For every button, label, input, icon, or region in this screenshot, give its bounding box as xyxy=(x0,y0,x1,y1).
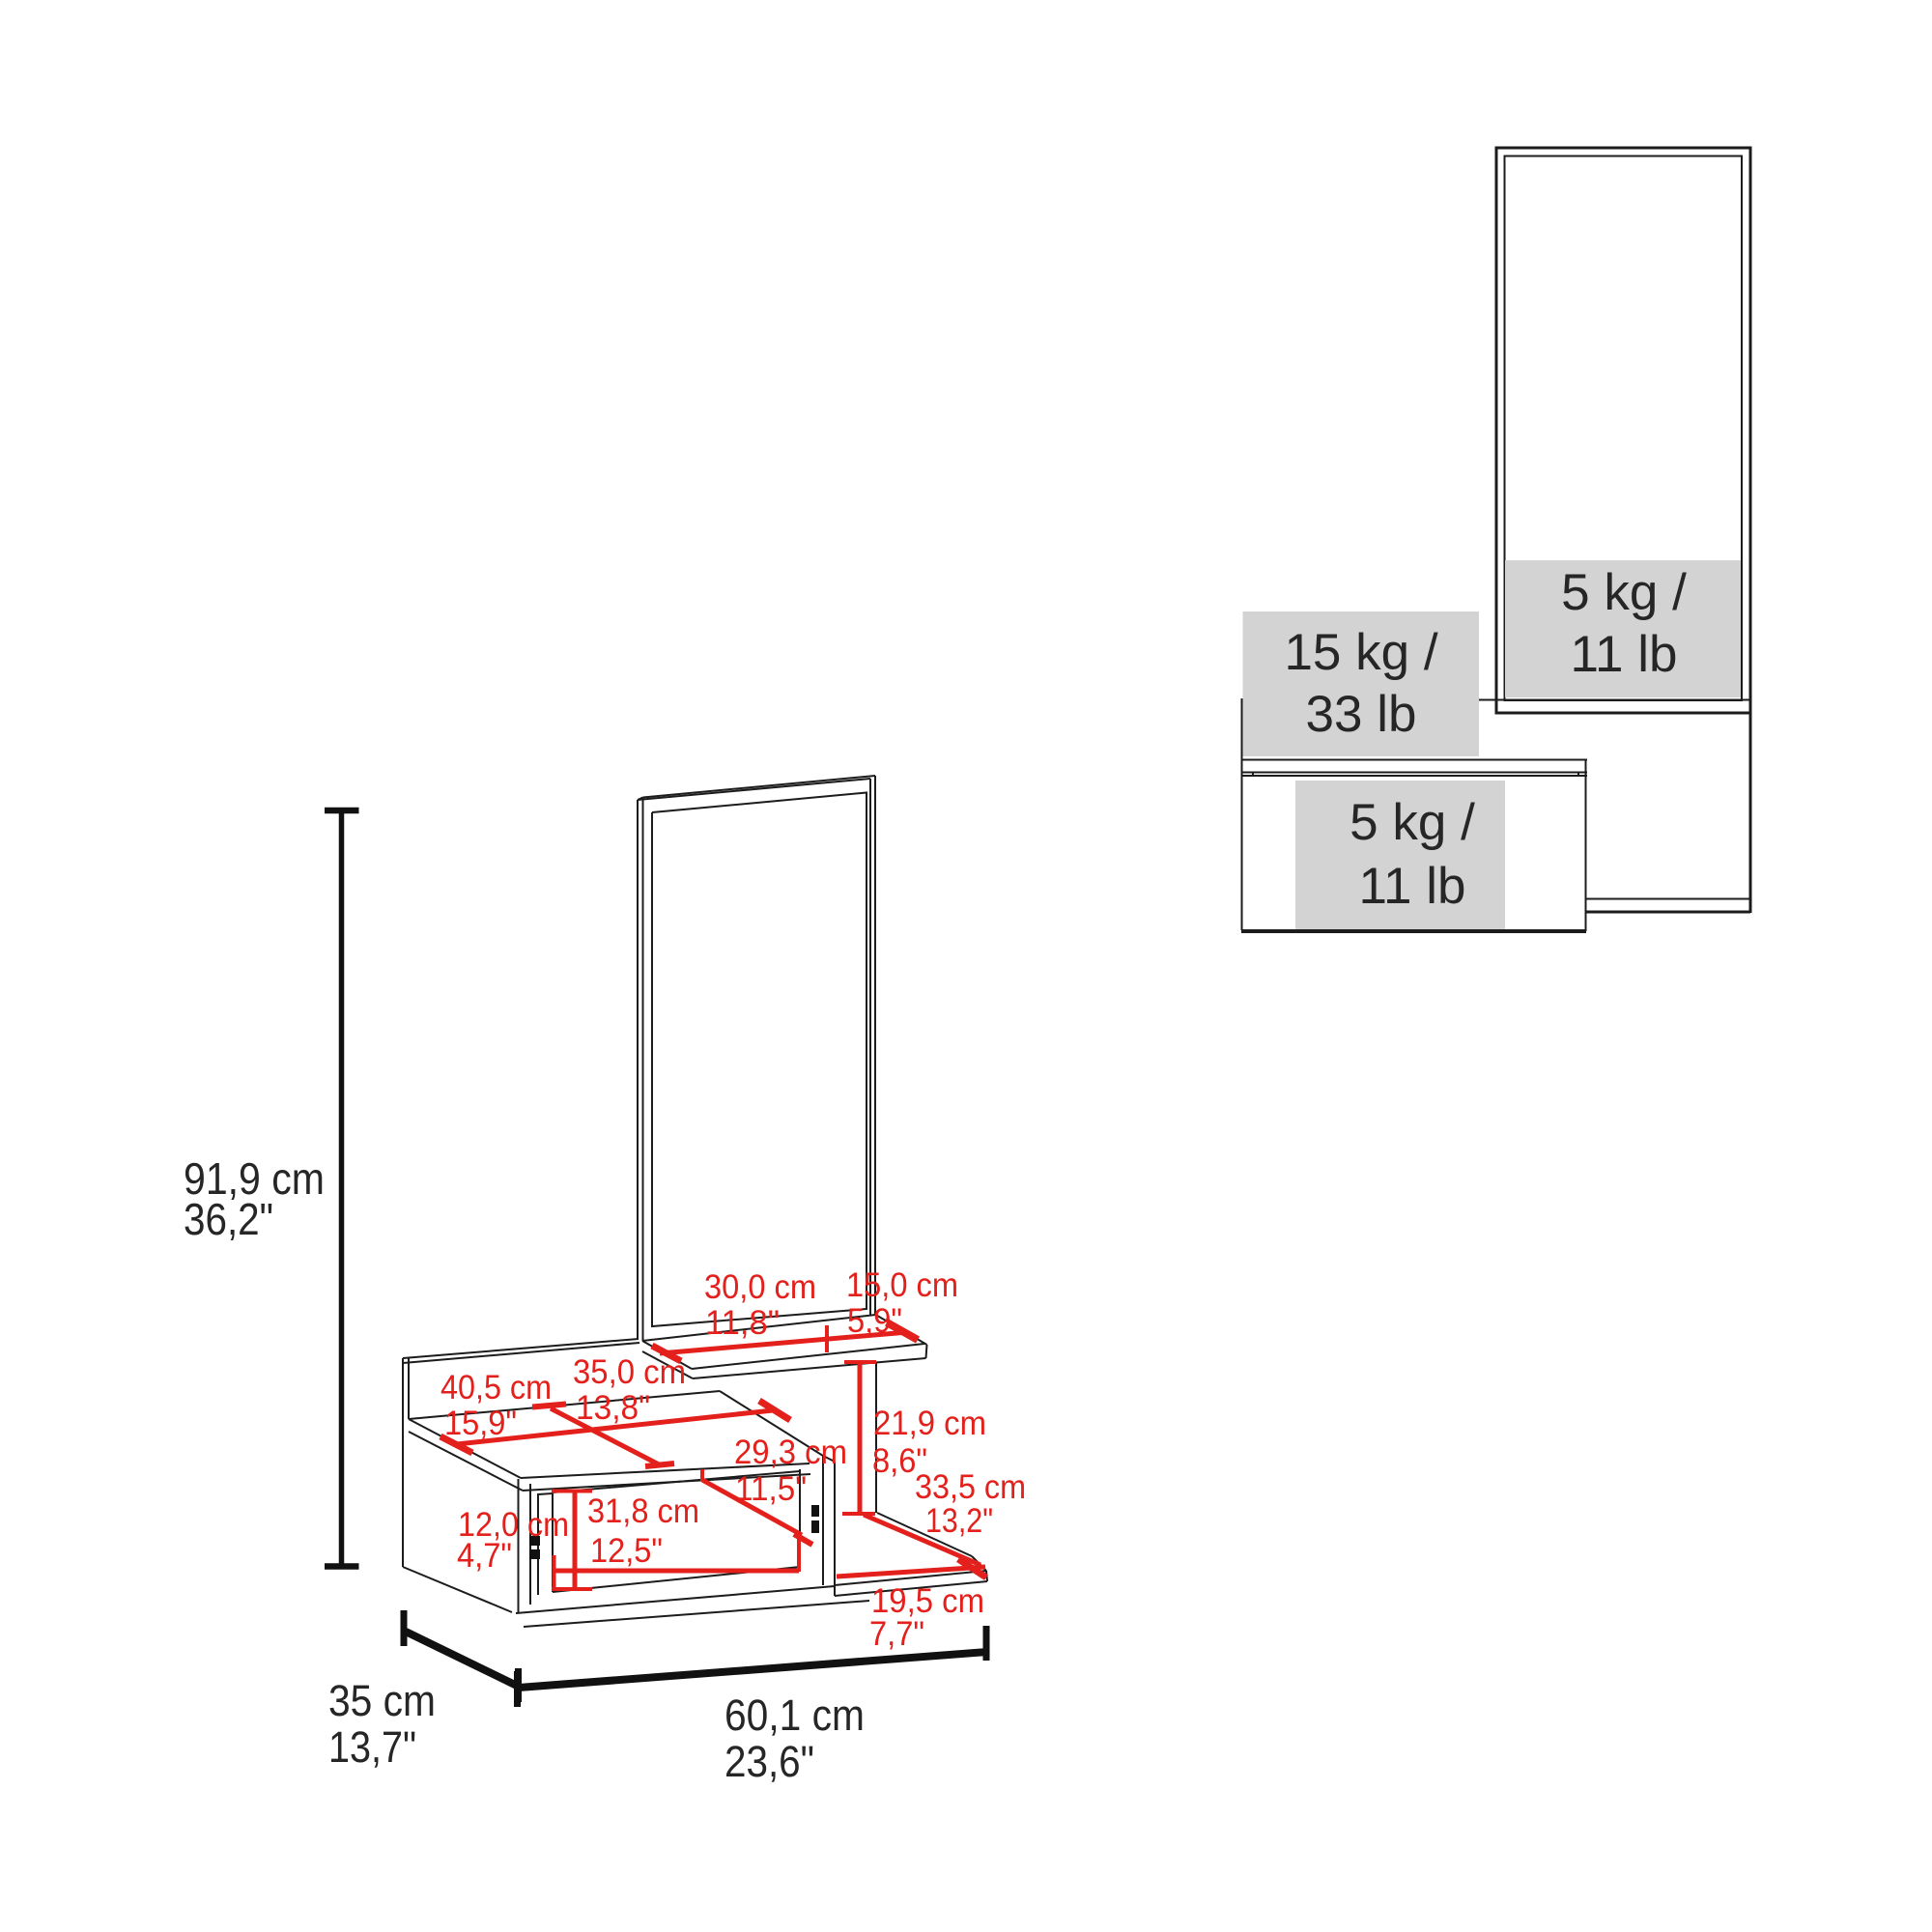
svg-text:35,0 cm: 35,0 cm xyxy=(573,1353,686,1391)
svg-text:13,8": 13,8" xyxy=(576,1389,650,1427)
svg-text:60,1 cm: 60,1 cm xyxy=(724,1690,865,1740)
svg-text:11,8": 11,8" xyxy=(705,1304,780,1342)
svg-text:15,0 cm: 15,0 cm xyxy=(846,1266,958,1304)
svg-text:5 kg /: 5 kg / xyxy=(1350,794,1475,851)
svg-text:13,2": 13,2" xyxy=(925,1502,993,1540)
svg-text:5,9": 5,9" xyxy=(847,1302,902,1340)
svg-text:21,9 cm: 21,9 cm xyxy=(873,1405,986,1442)
svg-text:33,5 cm: 33,5 cm xyxy=(915,1468,1026,1506)
svg-text:12,5": 12,5" xyxy=(590,1532,663,1570)
svg-text:35 cm: 35 cm xyxy=(328,1676,436,1725)
svg-text:13,7": 13,7" xyxy=(328,1722,416,1772)
svg-text:33 lb: 33 lb xyxy=(1306,686,1417,743)
svg-text:30,0 cm: 30,0 cm xyxy=(704,1268,816,1306)
svg-text:23,6": 23,6" xyxy=(724,1737,814,1786)
svg-text:5 kg /: 5 kg / xyxy=(1561,564,1687,621)
svg-text:11,5": 11,5" xyxy=(735,1470,807,1508)
svg-text:4,7": 4,7" xyxy=(457,1537,512,1575)
svg-text:11 lb: 11 lb xyxy=(1359,858,1466,915)
svg-text:36,2": 36,2" xyxy=(184,1194,273,1244)
svg-text:31,8 cm: 31,8 cm xyxy=(587,1492,699,1530)
svg-text:29,3 cm: 29,3 cm xyxy=(734,1434,847,1471)
svg-text:40,5 cm: 40,5 cm xyxy=(440,1369,552,1406)
svg-text:15 kg /: 15 kg / xyxy=(1284,624,1437,681)
svg-text:15,9": 15,9" xyxy=(444,1405,517,1442)
svg-text:7,7": 7,7" xyxy=(869,1615,924,1653)
svg-text:11 lb: 11 lb xyxy=(1571,626,1678,683)
